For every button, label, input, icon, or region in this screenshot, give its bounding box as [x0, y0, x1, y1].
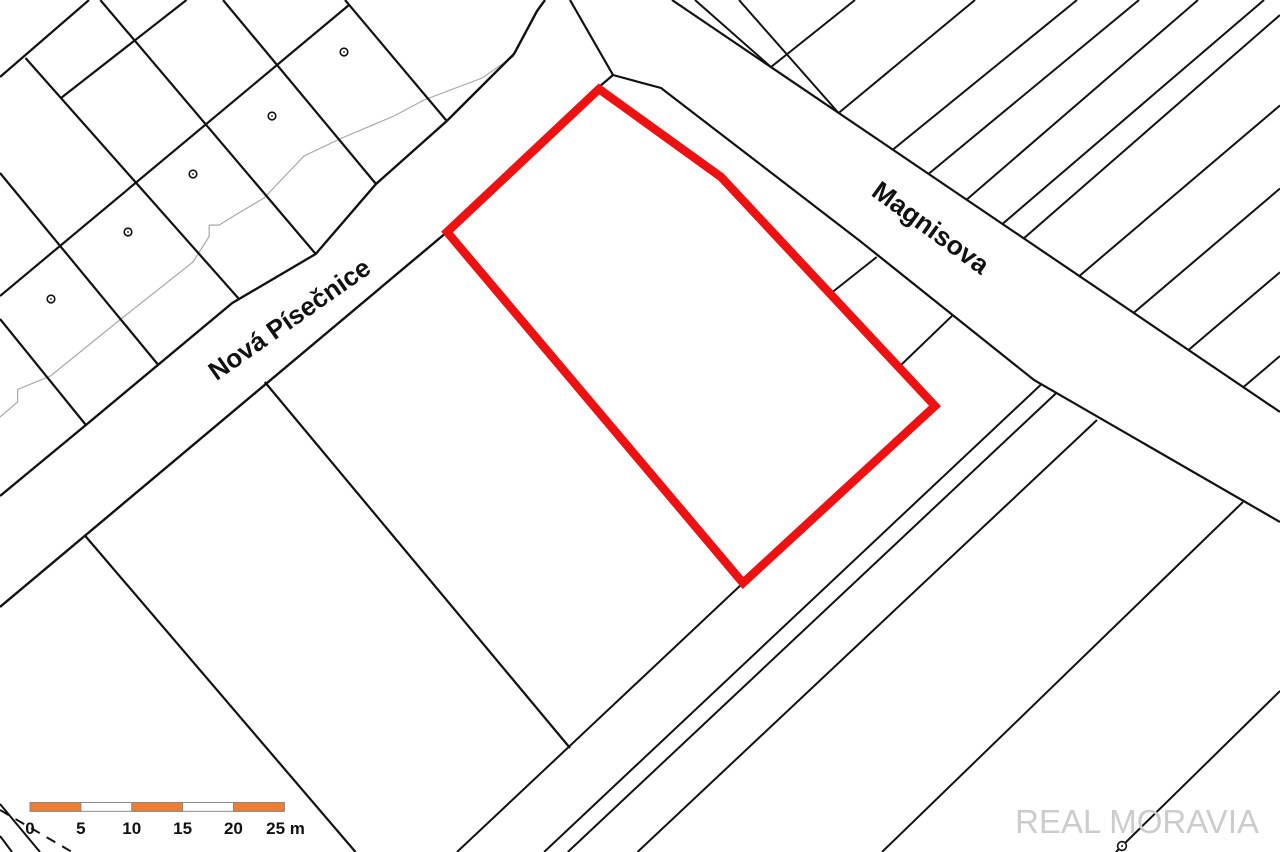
svg-text:25 m: 25 m — [266, 819, 305, 838]
svg-text:5: 5 — [76, 819, 85, 838]
svg-text:20: 20 — [224, 819, 243, 838]
svg-text:15: 15 — [173, 819, 192, 838]
svg-text:Nová Písečnice: Nová Písečnice — [203, 252, 376, 386]
svg-text:10: 10 — [122, 819, 141, 838]
svg-text:REAL MORAVIA: REAL MORAVIA — [1015, 803, 1259, 840]
svg-text:0: 0 — [25, 819, 34, 838]
